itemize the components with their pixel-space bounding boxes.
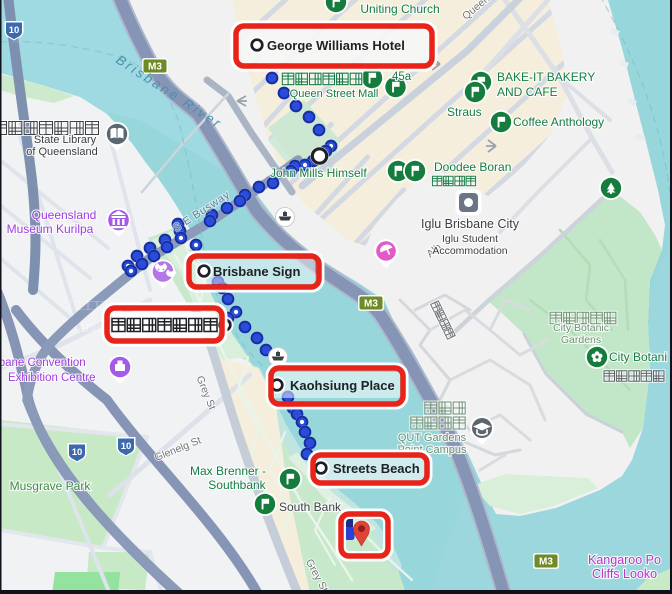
- svg-text:Uniting Church: Uniting Church: [360, 2, 439, 16]
- svg-text:10: 10: [9, 25, 20, 36]
- svg-text:Iglu Student: Iglu Student: [442, 233, 498, 245]
- svg-text:BAKE-IT BAKERY: BAKE-IT BAKERY: [497, 70, 595, 84]
- svg-text:City Botani: City Botani: [609, 350, 667, 364]
- svg-text:State Library: State Library: [34, 134, 97, 146]
- svg-text:Doodee Boran: Doodee Boran: [434, 160, 511, 174]
- svg-text:Straus: Straus: [447, 105, 482, 119]
- svg-text:Kangaroo Po: Kangaroo Po: [588, 553, 661, 567]
- svg-text:John Mills Himself: John Mills Himself: [270, 166, 367, 180]
- svg-text:Queensland: Queensland: [32, 208, 97, 222]
- svg-text:AND CAFE: AND CAFE: [497, 85, 558, 99]
- svg-text:Gardens: Gardens: [561, 334, 601, 346]
- svg-text:Southbank: Southbank: [208, 478, 266, 492]
- svg-text:M3: M3: [364, 299, 378, 310]
- svg-text:M3: M3: [539, 557, 553, 568]
- svg-text:Queen Street Mall: Queen Street Mall: [290, 88, 379, 100]
- svg-text:Musgrave Park: Musgrave Park: [10, 479, 92, 493]
- svg-text:Iglu Brisbane City: Iglu Brisbane City: [421, 217, 520, 231]
- svg-text:Cliffs Looko: Cliffs Looko: [592, 567, 657, 581]
- svg-text:Accommodation: Accommodation: [432, 245, 507, 257]
- svg-text:Brisbane Sign: Brisbane Sign: [213, 264, 300, 279]
- svg-text:QUT Gardens: QUT Gardens: [398, 432, 467, 444]
- svg-text:Kaohsiung Place: Kaohsiung Place: [290, 378, 395, 393]
- svg-text:City Botanic: City Botanic: [553, 322, 609, 334]
- svg-text:South Bank: South Bank: [279, 500, 342, 514]
- svg-text:Exhibition Centre: Exhibition Centre: [8, 372, 96, 384]
- svg-text:sbane Convention: sbane Convention: [0, 357, 86, 369]
- svg-text:Museum Kurilpa: Museum Kurilpa: [7, 222, 94, 236]
- svg-text:10: 10: [72, 447, 83, 458]
- svg-text:of Queensland: of Queensland: [26, 146, 98, 158]
- svg-text:George Williams Hotel: George Williams Hotel: [267, 38, 405, 53]
- svg-text:45a: 45a: [392, 71, 412, 83]
- svg-text:Streets Beach: Streets Beach: [333, 461, 420, 476]
- svg-text:Max Brenner -: Max Brenner -: [190, 464, 266, 478]
- svg-text:10: 10: [121, 441, 132, 452]
- svg-text:Coffee Anthology: Coffee Anthology: [513, 115, 604, 129]
